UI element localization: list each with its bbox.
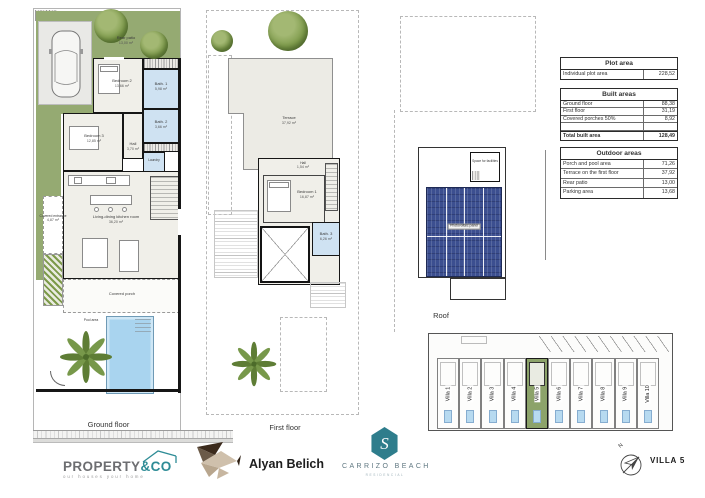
villa-plot: Villa 10 <box>637 358 659 429</box>
roof-lower-step <box>450 278 506 300</box>
bath-1-label: Bath. 1 5,98 m² <box>146 82 176 91</box>
villa-label: Villa 4 <box>512 385 518 402</box>
stool <box>122 207 127 212</box>
villa-label: Villa 9 <box>623 385 629 402</box>
first-floor-caption: First floor <box>255 423 315 432</box>
facilities-space: Space for facilities <box>470 152 500 182</box>
covered-entrance <box>43 196 63 254</box>
room-name: Space for facilities <box>472 159 498 163</box>
pool-outline-dashed <box>280 317 327 392</box>
wardrobe <box>143 58 180 69</box>
covered-entrance-label: Covered entrance 4,87 m² <box>39 214 67 222</box>
laundry-label: Laundry <box>143 159 165 163</box>
room-name: Bedroom 3 <box>84 133 104 138</box>
villa-label: Villa 5 <box>534 385 540 402</box>
table-row: Terrace on the first floor 37,92 <box>561 169 677 178</box>
villa-plot: Villa 2 <box>459 358 481 429</box>
villa-label: Villa 3 <box>490 385 496 402</box>
site-structure <box>461 336 487 344</box>
room-name: Bath. 3 <box>320 231 333 236</box>
table-row: Covered porches 50% 8,92 <box>561 116 677 123</box>
row-label: Terrace on the first floor <box>561 169 644 177</box>
north-arrow-icon <box>617 450 645 478</box>
sofa <box>119 240 139 272</box>
row-value: 13,68 <box>644 188 677 197</box>
room-area: 13,66 m² <box>104 84 140 88</box>
tree-icon <box>268 11 308 51</box>
table-row: First floor 31,19 <box>561 108 677 115</box>
row-label: Individual plot area <box>561 70 644 79</box>
pool-label: Pool area <box>76 318 106 322</box>
villa-reference: VILLA 5 <box>650 456 685 465</box>
roofline-icon <box>142 450 178 463</box>
row-value: 228,52 <box>644 70 677 79</box>
dimension-line <box>545 150 546 260</box>
villa-label: Villa 6 <box>556 385 562 402</box>
bedroom-3-label: Bedroom 3 12,85 m² <box>76 134 112 143</box>
villa-label: Villa 10 <box>645 384 651 404</box>
villa-plot: Villa 7 <box>570 358 592 429</box>
living-label: Living-dining kitchen room 36,20 m² <box>86 215 146 224</box>
staircase <box>150 176 179 220</box>
table-row: Porch and pool area 71,26 <box>561 160 677 169</box>
parking-pad <box>38 21 92 105</box>
outdoor-areas-table: Outdoor areas Porch and pool area 71,26 … <box>560 147 678 199</box>
room-area: 3,66 m² <box>146 125 176 129</box>
window <box>104 57 124 60</box>
row-value: 8,92 <box>644 116 677 122</box>
villa-plot: Villa 3 <box>481 358 503 429</box>
void-double-height <box>260 226 310 283</box>
room-name: Pool area <box>84 318 99 322</box>
pillow <box>100 66 118 72</box>
roof-caption: Roof <box>423 311 459 320</box>
roof-plan: Space for facilities Photovoltaic panel … <box>390 14 555 326</box>
terrace-upper <box>228 58 333 114</box>
bath-3-label: Bath. 3 6,26 m² <box>312 232 340 241</box>
room-name: Bath. 2 <box>155 119 168 124</box>
room-area: 3,70 m² <box>121 147 145 151</box>
dining-table <box>82 238 108 268</box>
row-label <box>561 123 644 129</box>
origami-bird-logo-icon <box>193 441 241 481</box>
room-area: 13,00 m² <box>104 41 148 45</box>
living-dining-kitchen <box>63 171 180 279</box>
bedroom-1-label: Bedroom 1 16,87 m² <box>288 190 326 199</box>
table-row: Rear patio 13,00 <box>561 179 677 188</box>
villa-plot: Villa 8 <box>592 358 614 429</box>
stool <box>94 207 99 212</box>
pergola-hatch <box>214 210 258 278</box>
villa-row: Villa 1 Villa 2 Villa 3 Villa 4 Villa 5 … <box>437 358 659 429</box>
table-row-total: Total built area 128,49 <box>561 131 677 140</box>
entry-door-arc <box>50 371 65 386</box>
room-name: Hall <box>130 141 137 146</box>
room-name: Bedroom 2 <box>112 78 132 83</box>
architect-name: Alyan Belich <box>249 457 324 471</box>
chimney-hatch <box>472 171 480 180</box>
room-area: 36,20 m² <box>86 220 146 224</box>
kitchen-island <box>90 195 132 205</box>
row-label: Parking area <box>561 188 644 197</box>
tree-icon <box>211 30 233 52</box>
table-title: Built areas <box>561 89 677 101</box>
property-co-logo: PROPERTY&CO our houses your home <box>63 459 172 479</box>
brand-tagline: our houses your home <box>63 474 172 479</box>
room-area: 1,54 m² <box>292 165 314 169</box>
ground-floor-caption: Ground floor <box>71 420 146 429</box>
villa-label: Villa 2 <box>467 385 473 402</box>
plot-boundary-dashed <box>400 16 536 112</box>
hall-label: Hall 1,54 m² <box>292 161 314 169</box>
north-label: N <box>618 442 625 449</box>
residential-subtitle: RESIDENCIAL <box>342 473 428 477</box>
room-area: 5,98 m² <box>146 87 176 91</box>
table-row: Ground floor 88,38 <box>561 101 677 108</box>
monogram: S <box>380 435 389 452</box>
hob <box>106 177 116 184</box>
built-areas-table: Built areas Ground floor 88,38 First flo… <box>560 88 678 141</box>
room-area: 16,87 m² <box>288 195 326 199</box>
window <box>178 209 181 235</box>
boundary-dashed <box>394 110 395 332</box>
row-value: 13,00 <box>644 179 677 187</box>
first-floor-plan: Terrace 37,92 m² Hall 1,54 m² Bedroom 1 … <box>206 10 360 433</box>
room-name: Terrace <box>282 115 295 120</box>
room-area: 37,92 m² <box>264 121 314 125</box>
hall-label: Hall 3,70 m² <box>121 142 145 151</box>
room-area: 6,26 m² <box>312 237 340 241</box>
front-wall <box>36 389 180 392</box>
facilities-label: Space for facilities <box>472 160 498 164</box>
room-name: Living-dining kitchen room <box>93 214 139 219</box>
villa-plot: Villa 1 <box>437 358 459 429</box>
room-name: Rear patio <box>117 35 135 40</box>
pv-label: Photovoltaic panel <box>448 223 481 230</box>
pool-steps <box>135 319 151 332</box>
terrace-label: Terrace 37,92 m² <box>264 116 314 125</box>
carrizo-hexagon-icon: S <box>370 427 399 460</box>
stool <box>108 207 113 212</box>
car-icon <box>48 29 84 99</box>
row-label: Total built area <box>561 132 644 140</box>
table-row: Individual plot area 228,52 <box>561 70 677 79</box>
row-label: Porch and pool area <box>561 160 644 168</box>
room-name: Bath. 1 <box>155 81 168 86</box>
row-value: 88,38 <box>644 101 677 107</box>
residential-name: CARRIZO BEACH <box>342 463 428 470</box>
villa-plot-highlighted: Villa 5 <box>526 358 548 429</box>
table-title: Outdoor areas <box>561 148 677 160</box>
rear-patio-label: Rear patio 13,00 m² <box>104 36 148 45</box>
row-label: Ground floor <box>561 101 644 107</box>
row-value: 31,19 <box>644 108 677 114</box>
room-name: Bedroom 1 <box>297 189 317 194</box>
photovoltaic-panel-array: Photovoltaic panel <box>426 187 502 277</box>
ground-floor-plan: Rear patio 13,00 m² Bedroom 2 13,66 m² B… <box>33 8 181 434</box>
villa-plot: Villa 6 <box>548 358 570 429</box>
staircase <box>325 163 338 211</box>
villa-label: Villa 1 <box>445 385 451 402</box>
row-value: 128,49 <box>644 132 677 140</box>
porch-roof-hatch <box>310 282 346 308</box>
table-row-blank <box>561 123 677 130</box>
parking-hatch <box>539 336 669 352</box>
site-plan: Villa 1 Villa 2 Villa 3 Villa 4 Villa 5 … <box>428 333 673 431</box>
hall <box>123 113 143 159</box>
wardrobe <box>143 143 180 152</box>
row-value: 37,92 <box>644 169 677 177</box>
plot-area-table: Plot area Individual plot area 228,52 <box>560 57 678 80</box>
sink <box>74 177 82 184</box>
room-area: 12,85 m² <box>76 139 112 143</box>
room-name: Laundry <box>148 158 160 162</box>
plan-sheet: Rear patio 13,00 m² Bedroom 2 13,66 m² B… <box>0 0 705 498</box>
row-value: 71,26 <box>644 160 677 168</box>
entry-steps <box>43 254 63 306</box>
table-title: Plot area <box>561 58 677 70</box>
palm-tree-icon <box>58 329 114 385</box>
room-name: Covered porch <box>109 291 135 296</box>
villa-plot: Villa 4 <box>504 358 526 429</box>
row-value <box>644 123 677 129</box>
villa-label: Villa 7 <box>578 385 584 402</box>
brand-text: PROPERTY <box>63 459 140 474</box>
row-label: First floor <box>561 108 644 114</box>
room-area: 4,87 m² <box>39 218 67 222</box>
row-label: Covered porches 50% <box>561 116 644 122</box>
row-label: Rear patio <box>561 179 644 187</box>
bath-2-label: Bath. 2 3,66 m² <box>146 120 176 129</box>
villa-plot: Villa 9 <box>615 358 637 429</box>
pillow <box>269 182 289 188</box>
covered-porch-label: Covered porch <box>94 292 150 297</box>
villa-label: Villa 8 <box>601 385 607 402</box>
table-row: Parking area 13,68 <box>561 188 677 197</box>
bedroom-2-label: Bedroom 2 13,66 m² <box>104 79 140 88</box>
palm-tree-icon <box>230 340 278 388</box>
